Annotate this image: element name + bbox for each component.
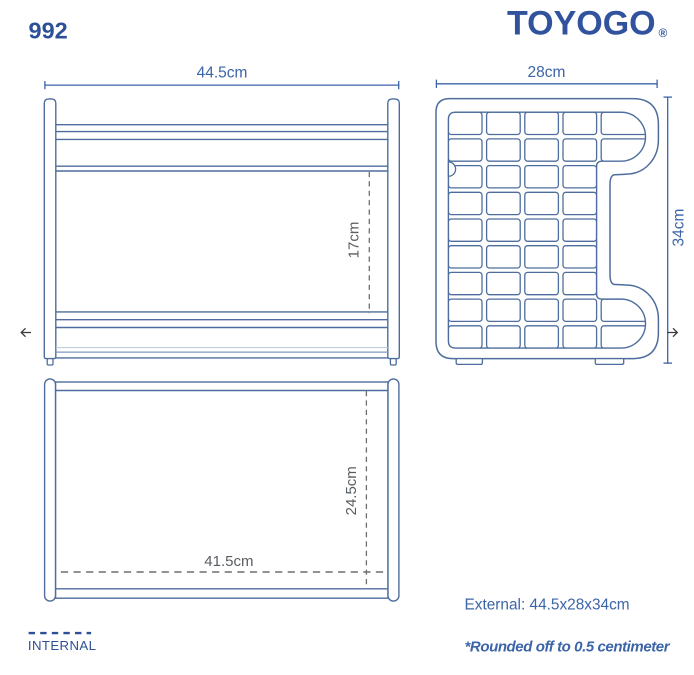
svg-text:INTERNAL: INTERNAL bbox=[28, 638, 96, 653]
svg-text:34cm: 34cm bbox=[671, 209, 688, 247]
svg-text:24.5cm: 24.5cm bbox=[343, 466, 360, 515]
svg-text:*Rounded off to 0.5 centimeter: *Rounded off to 0.5 centimeter bbox=[465, 639, 671, 656]
svg-text:28cm: 28cm bbox=[528, 64, 566, 81]
svg-text:17cm: 17cm bbox=[346, 222, 363, 259]
svg-text:®: ® bbox=[659, 26, 668, 40]
svg-text:41.5cm: 41.5cm bbox=[204, 553, 253, 570]
svg-text:44.5cm: 44.5cm bbox=[197, 65, 248, 82]
svg-text:992: 992 bbox=[29, 18, 68, 44]
svg-text:External: 44.5x28x34cm: External: 44.5x28x34cm bbox=[465, 597, 630, 614]
svg-text:TOYOGO: TOYOGO bbox=[507, 4, 656, 42]
